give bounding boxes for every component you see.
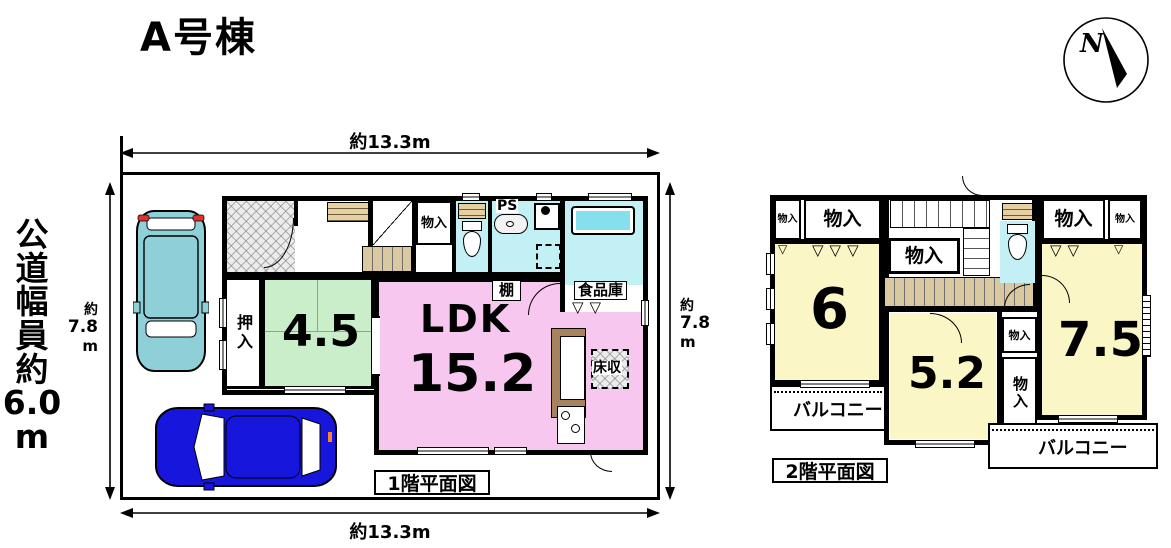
window: [766, 253, 775, 275]
car-top-view-teal: [133, 206, 209, 376]
road-char: m: [15, 420, 49, 454]
room75-size-label: 7.5: [1058, 316, 1143, 364]
toilet-tank-icon: [462, 221, 482, 231]
window: [641, 300, 649, 326]
dim-right-value: 7.8: [680, 314, 718, 334]
window: [766, 323, 775, 345]
balcony-rail: [774, 391, 882, 393]
closet-monoire-1f: 物入: [416, 201, 452, 245]
road-char: 6.0: [3, 386, 61, 420]
window: [219, 298, 227, 328]
road-char: 公: [16, 218, 49, 252]
sliding-door-opening: [372, 316, 380, 376]
closet-monoire-2f-mid: 物入: [888, 238, 960, 274]
stairs-landing: [373, 201, 412, 245]
toilet-shelf: [458, 203, 486, 219]
ldk-size-label: 15.2: [408, 348, 536, 400]
closet-monoire-2f-small: 物入: [774, 199, 801, 240]
balcony-left-label: バルコニー: [793, 402, 883, 420]
shoe-cabinet: [327, 202, 371, 222]
closet-label: 物入: [905, 247, 943, 266]
dim-right-unit: m: [680, 334, 718, 351]
balcony-right-label: バルコニー: [1038, 440, 1128, 458]
road-char: 約: [16, 353, 49, 387]
stove-burner: [571, 424, 580, 433]
toilet-shelf-2f: [1002, 203, 1033, 220]
window: [284, 386, 346, 394]
closet-monoire-2f-large: 物入: [1042, 199, 1105, 240]
bifold-door-icon: ▽▽: [572, 300, 607, 315]
dim-left-value: 7.8: [60, 318, 98, 338]
bifold-door-icon: ▽▽: [1050, 243, 1085, 258]
closet-monoire-2f-large: 物入: [804, 199, 881, 240]
window: [766, 288, 775, 310]
dimension-arrow-left: [102, 182, 118, 500]
dimension-arrow-right: [662, 182, 678, 500]
car-top-view-blue: [152, 402, 342, 494]
washer-pan: [536, 244, 561, 269]
bifold-door-icon: ▽: [778, 243, 789, 255]
dim-right-approx: 約: [680, 298, 718, 314]
closet-label: 物入: [823, 210, 861, 229]
door-arc: [962, 176, 982, 196]
balcony-rail: [992, 429, 1154, 431]
bifold-door-icon: ▽▽▽: [812, 243, 865, 258]
closet-monoire-2f-tall: 物入: [1002, 357, 1037, 429]
dim-bottom-label: 約13.3m: [320, 518, 460, 544]
basin-drain: [506, 221, 514, 227]
washer-knob: [541, 206, 550, 215]
stairs: [362, 246, 412, 272]
window: [417, 447, 489, 455]
closet-label: 物入: [778, 215, 798, 225]
kitchen-sink: [560, 336, 585, 400]
oshiire-label: 押入: [235, 314, 251, 352]
floor-storage-label: 床収: [592, 361, 622, 375]
floor-plan-canvas: A号棟 N 公 道 幅 員 約 6.0 m 約13.3m 約13.3m 約 7.…: [0, 0, 1171, 548]
page-title: A号棟: [140, 18, 257, 58]
window: [588, 193, 632, 201]
compass-n-label: N: [1079, 29, 1105, 59]
closet-label: 物入: [1054, 210, 1092, 229]
dim-left-approx: 約: [60, 302, 98, 318]
window: [800, 380, 870, 388]
road-width-label: 公 道 幅 員 約 6.0 m: [6, 218, 58, 454]
window: [915, 440, 975, 448]
floor2-caption: 2階平面図: [772, 458, 888, 483]
stairs-upper-2f: [890, 200, 990, 228]
dim-left-unit: m: [60, 338, 98, 355]
north-compass-icon: N: [1060, 12, 1152, 108]
dim-left-label: 約 7.8 m: [60, 302, 98, 355]
road-char: 幅: [16, 285, 49, 319]
closet-label: 物入: [1009, 330, 1031, 341]
closet-monoire-2f-small: 物入: [1002, 317, 1037, 353]
closet-label: 物入: [421, 217, 447, 230]
bifold-door-icon: ▽: [1114, 243, 1125, 255]
closet-oshiire: 押入: [224, 277, 262, 389]
wall: [294, 196, 298, 226]
floor1-caption: 1階平面図: [374, 470, 490, 495]
room6-size-label: 6: [810, 282, 849, 338]
window: [1058, 415, 1118, 423]
dim-top-label: 約13.3m: [320, 128, 460, 154]
road-char: 道: [16, 252, 49, 286]
closet-monoire-2f-small: 物入: [1108, 199, 1142, 240]
stairs-column-2f: [963, 228, 990, 276]
room52-size-label: 5.2: [908, 352, 986, 396]
ldk-name-label: LDK: [420, 300, 511, 338]
stove-burner: [561, 411, 570, 420]
tatami-size-label: 4.5: [282, 310, 360, 354]
closet-label: 物入: [1012, 376, 1027, 410]
pipe-space-label: PS: [496, 199, 518, 213]
window: [219, 340, 227, 370]
window: [1142, 295, 1151, 357]
road-char: 員: [16, 319, 49, 353]
toilet-tank-icon: [1007, 224, 1028, 234]
window: [494, 447, 527, 455]
closet-label: 物入: [1115, 215, 1135, 225]
window: [536, 193, 552, 201]
dim-right-label: 約 7.8 m: [680, 298, 718, 351]
bathtub-icon: [571, 206, 635, 235]
window: [462, 193, 480, 201]
